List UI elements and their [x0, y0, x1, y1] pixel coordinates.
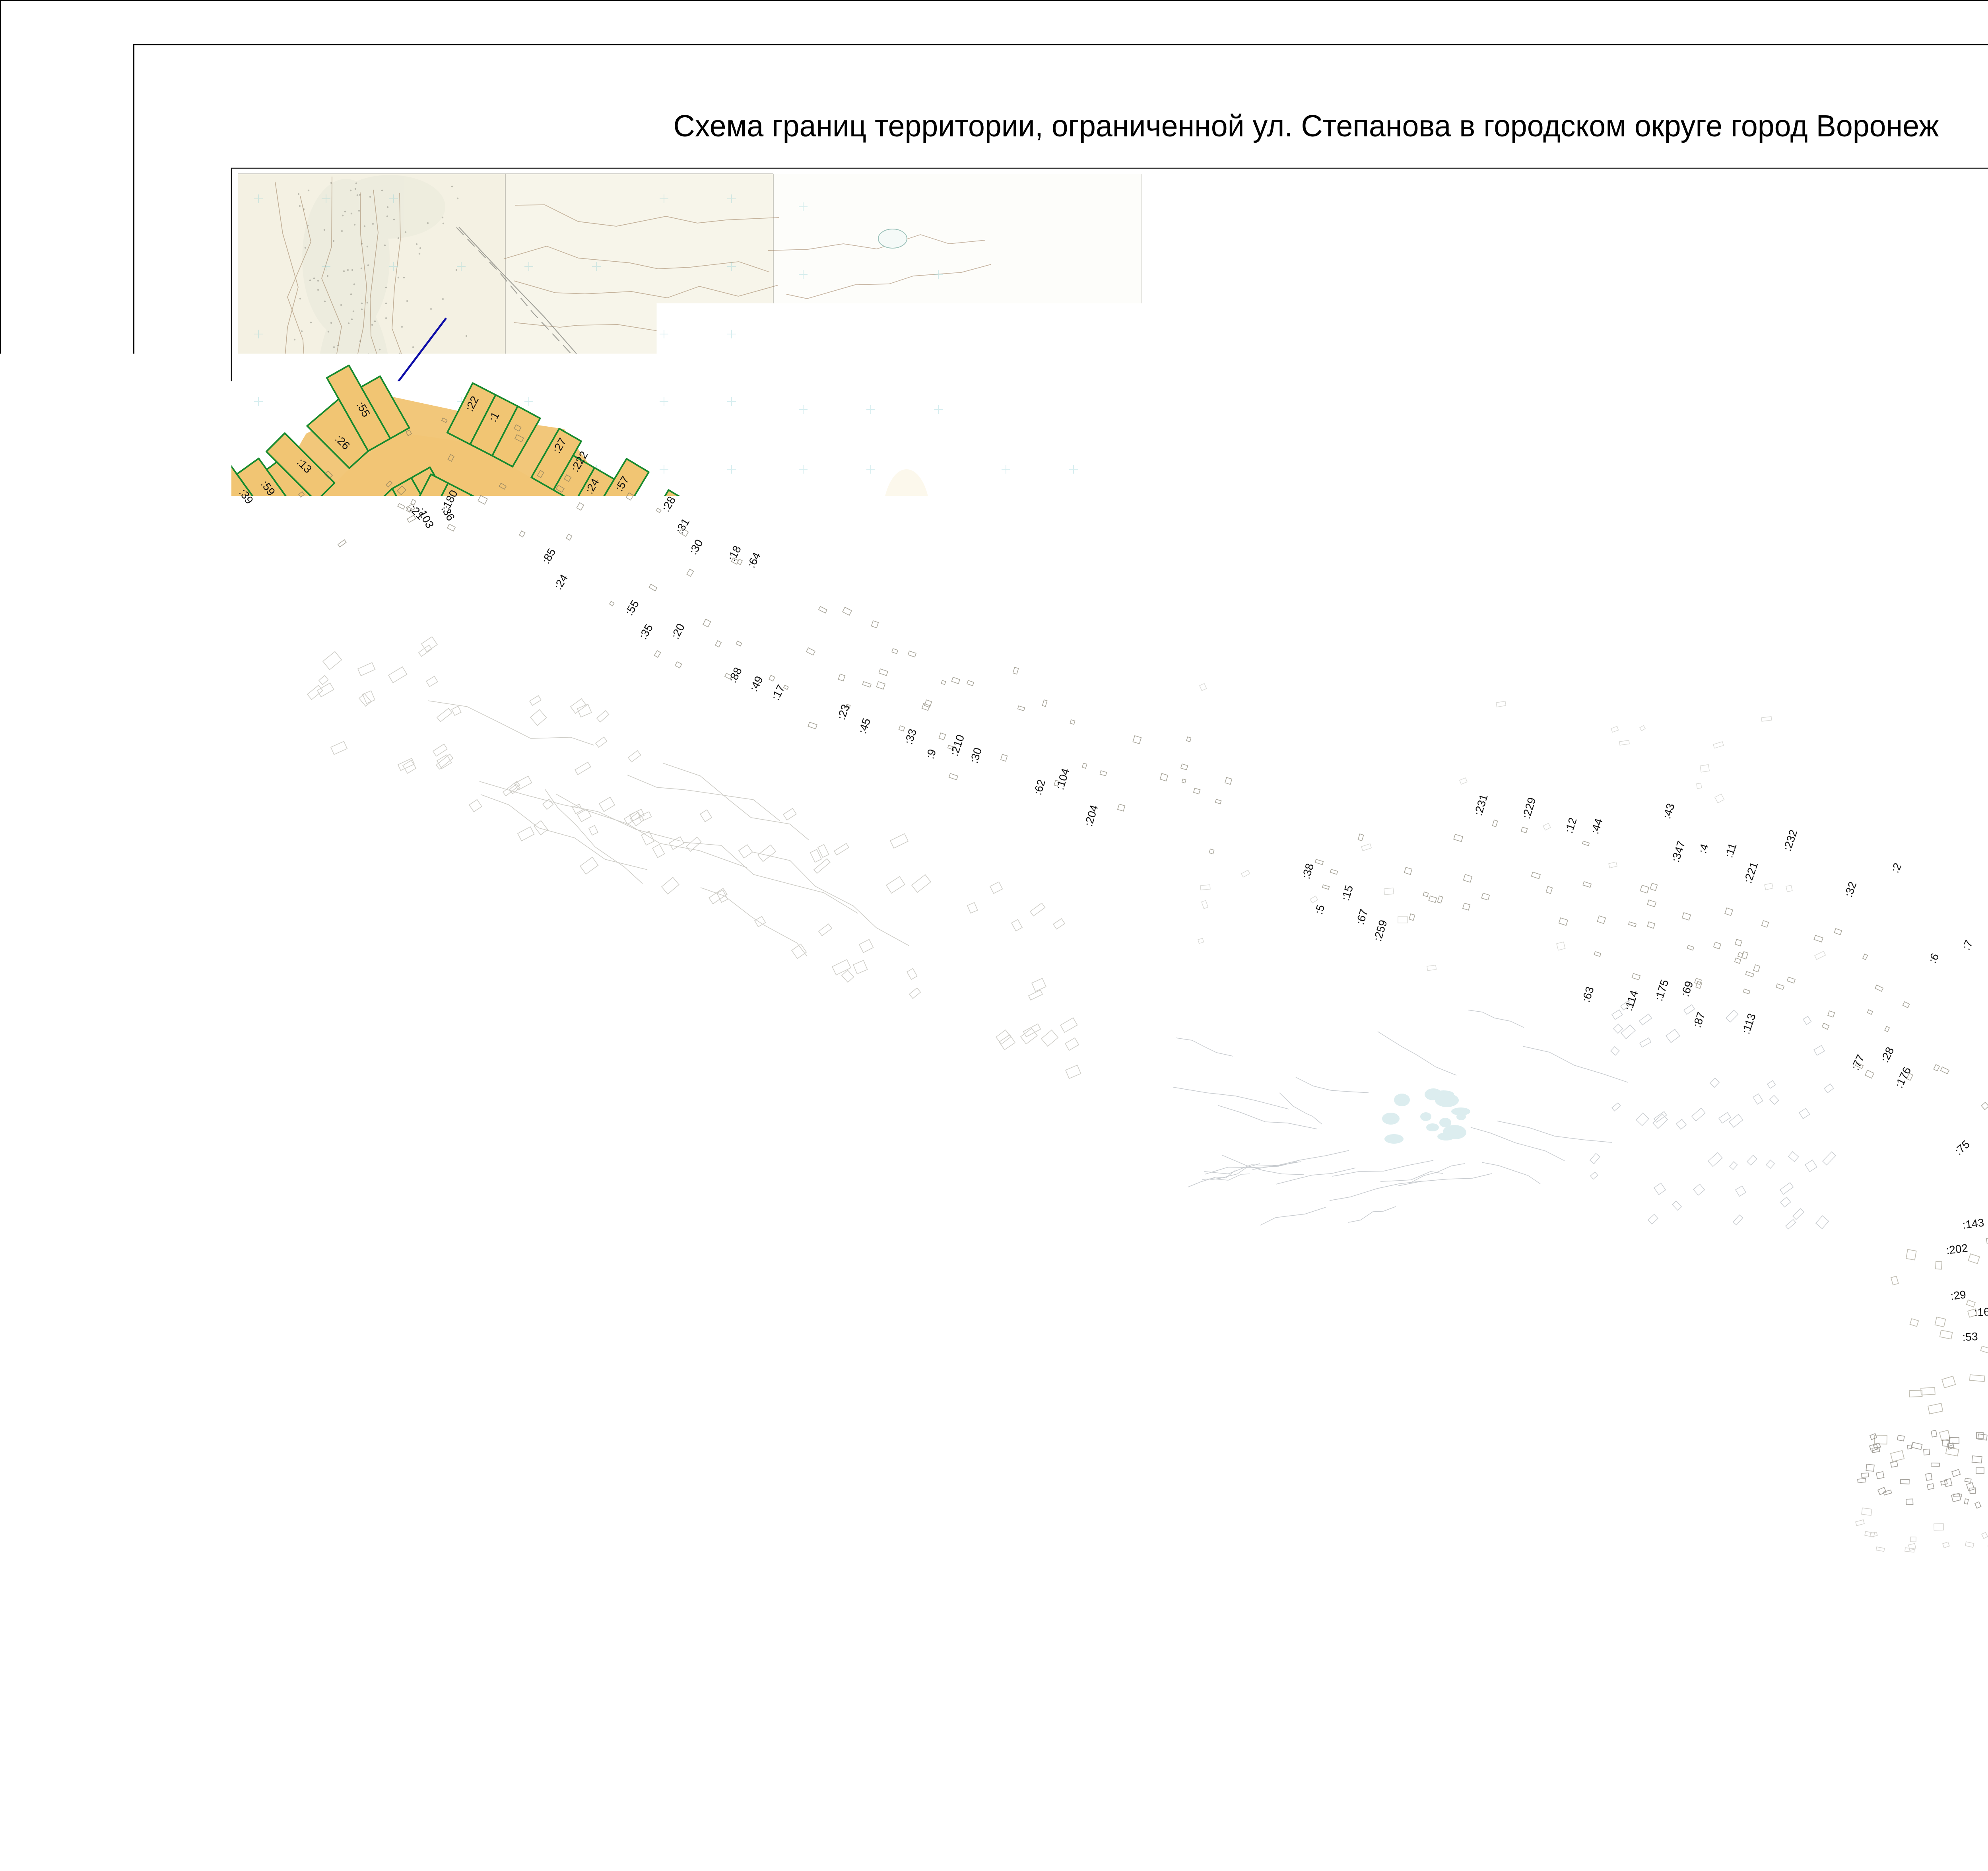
svg-text:Вид разрешенного: Вид разрешенного: [1600, 1671, 1707, 1685]
svg-text:границы кадастровых кварталов: границы кадастровых кварталов: [278, 1715, 531, 1734]
svg-text:36:34:0103020: 36:34:0103020: [1882, 1375, 1967, 1389]
svg-text:36:34:0103001: 36:34:0103001: [1340, 666, 1425, 681]
svg-text::16: :16: [1974, 1306, 1988, 1319]
svg-text::29: :29: [1950, 1288, 1967, 1302]
svg-text:участка,: участка,: [1433, 1686, 1480, 1700]
svg-text:недвижимости: недвижимости: [1092, 1693, 1175, 1707]
svg-text:зона малоэтажной индивидуально: зона малоэтажной индивидуальной застройк…: [278, 1759, 617, 1778]
svg-text:строительство: строительство: [1612, 1731, 1695, 1745]
svg-text:граница планируемой территории: граница планируемой территории: [278, 1691, 541, 1710]
svg-text:канализационной: канализационной: [1603, 1745, 1704, 1759]
svg-text:Ж1: Ж1: [1381, 823, 1408, 843]
svg-text::143: :143: [1962, 1216, 1985, 1231]
svg-text:населённых: населённых: [1507, 1738, 1576, 1752]
svg-text:пунктов: пунктов: [1520, 1752, 1564, 1766]
svg-text:36:34:0103002: 36:34:0103002: [571, 450, 656, 464]
svg-text:36:34:0103014: 36:34:0103014: [1789, 1059, 1874, 1073]
svg-text:границы земельных участков, уч: границы земельных участков, учтенных в Е…: [278, 1737, 901, 1756]
svg-text:1: 1: [1048, 1738, 1055, 1752]
svg-text:91: 91: [1450, 1738, 1463, 1752]
svg-text:36:34:0103011: 36:34:0103011: [1127, 918, 1211, 933]
svg-text:Ж1: Ж1: [239, 1762, 254, 1774]
svg-text:главного архитектора: главного архитектора: [1826, 1772, 1988, 1791]
svg-text:36:34:0103016: 36:34:0103016: [1949, 1233, 1988, 1247]
svg-text:земель: земель: [1522, 1686, 1563, 1700]
svg-text:Руководитель управления: Руководитель управления: [1826, 1748, 1988, 1768]
svg-text:36:34:0103003: 36:34:0103003: [389, 575, 474, 589]
svg-text:36:34:0103012: 36:34:0103012: [1452, 1046, 1537, 1061]
svg-text:земельного: земельного: [1423, 1671, 1489, 1685]
svg-text:Адрес: Адрес: [1288, 1679, 1323, 1692]
svg-text:номер объектов: номер объектов: [1088, 1679, 1180, 1692]
svg-text:насосной станции: насосной станции: [1602, 1759, 1705, 1773]
svg-text:Экспликация земельных участков: Экспликация земельных участков: [1033, 1626, 1289, 1644]
svg-text:п/п: п/п: [1043, 1686, 1060, 1700]
svg-text:Воронежская обл., г. Воронеж,: Воронежская обл., г. Воронеж,: [1218, 1731, 1392, 1745]
svg-text:использования: использования: [1610, 1686, 1696, 1700]
svg-text:Условные обозначения: Условные обозначения: [278, 1670, 455, 1689]
svg-text:Категория: Категория: [1513, 1671, 1571, 1685]
svg-text:Кадастровый: Кадастровый: [1096, 1664, 1172, 1678]
svg-text:36:34:0103013: 36:34:0103013: [1882, 803, 1967, 817]
svg-text:Земли: Земли: [1524, 1723, 1561, 1737]
svg-text:№: №: [1045, 1671, 1058, 1685]
svg-text:кв. м: кв. м: [1443, 1700, 1470, 1714]
svg-text:36:34:0103007: 36:34:0103007: [861, 828, 946, 842]
svg-text:Проектирование и: Проектирование и: [1601, 1716, 1706, 1730]
svg-text:ул. Степанова, 1н: ул. Степанова, 1н: [1254, 1745, 1357, 1759]
svg-text:36:34:0103021:9: 36:34:0103021:9: [1087, 1738, 1180, 1752]
svg-text:Схема границ территории, огран: Схема границ территории, ограниченной ул…: [674, 109, 1939, 143]
svg-text:Площадь: Площадь: [1430, 1657, 1483, 1671]
svg-text::53: :53: [1962, 1330, 1978, 1343]
svg-text:36:34:0103004: 36:34:0103004: [660, 775, 745, 789]
